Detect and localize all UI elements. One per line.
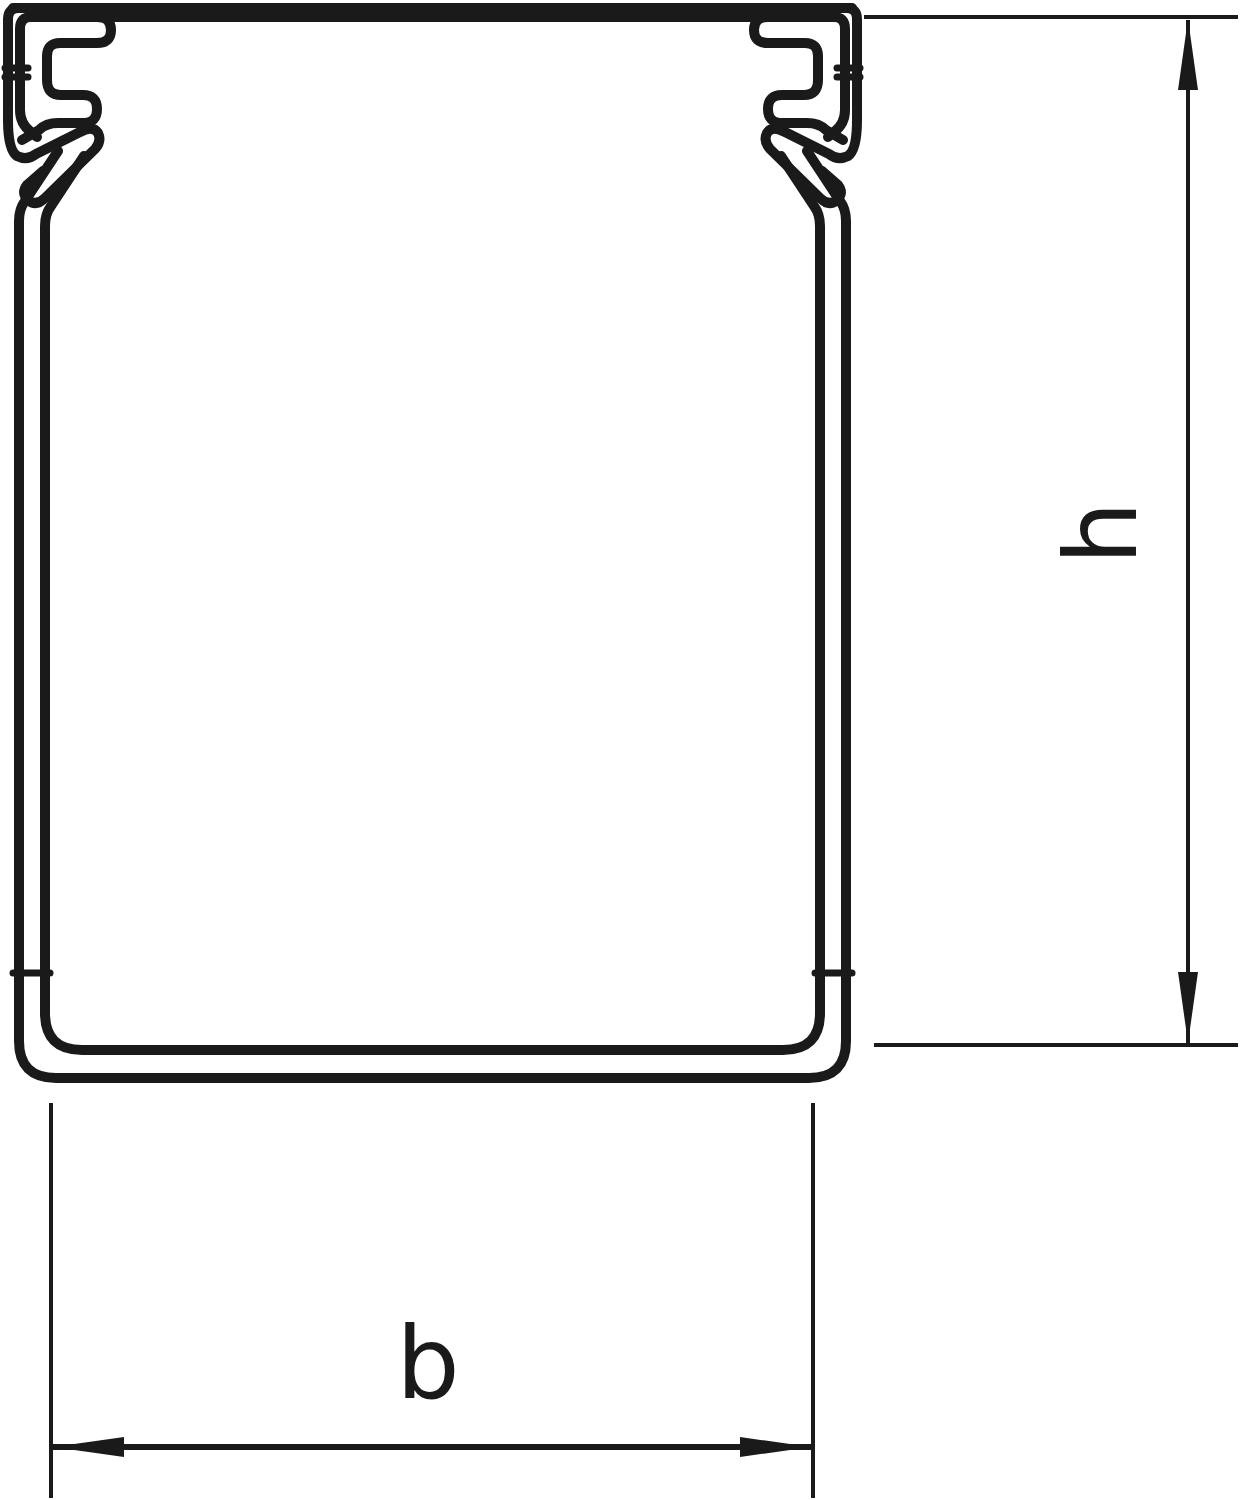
duct-profile [5, 8, 860, 1078]
cover-clip-left [5, 8, 852, 203]
cover-clip-right [13, 8, 860, 203]
height-dimension-label: h [1043, 501, 1160, 564]
height-arrowhead-up [1178, 19, 1198, 90]
height-arrowhead-down [1178, 972, 1198, 1043]
width-arrowhead-right [740, 1437, 811, 1457]
width-dimension: b [51, 1103, 813, 1498]
duct-body-inner-contour [45, 156, 820, 1050]
width-arrowhead-left [53, 1437, 124, 1457]
duct-body-outer-contour [19, 151, 846, 1078]
drawing-canvas: h b [0, 0, 1241, 1500]
clip-c-jaw [22, 17, 111, 140]
duct-cross-section-drawing: h b [0, 0, 1241, 1500]
height-dimension: h [864, 17, 1238, 1045]
width-dimension-label: b [396, 1305, 459, 1422]
clip-outer-edge [8, 8, 852, 203]
clip-inner-top-edge [20, 17, 836, 137]
